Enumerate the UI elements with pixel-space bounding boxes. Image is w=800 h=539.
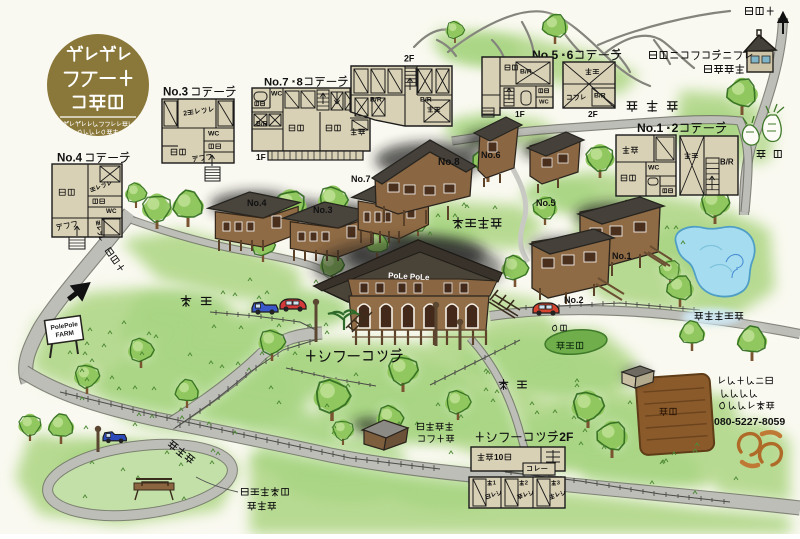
svg-text:No.3: No.3	[313, 205, 333, 215]
svg-text:No.1: No.1	[637, 121, 663, 135]
svg-text:No.8: No.8	[438, 157, 460, 168]
svg-text:No.5: No.5	[536, 198, 556, 208]
svg-text:B/R: B/R	[256, 121, 268, 128]
svg-text:B/R: B/R	[520, 69, 532, 76]
svg-text:No.2: No.2	[564, 295, 584, 305]
svg-text:No.3: No.3	[163, 86, 189, 99]
svg-text:1F: 1F	[256, 152, 266, 162]
svg-text:6: 6	[567, 48, 574, 62]
svg-text:080-5227-8059: 080-5227-8059	[714, 416, 785, 428]
svg-text:WC: WC	[271, 91, 282, 98]
svg-text:2F: 2F	[404, 53, 415, 63]
svg-text:B/R: B/R	[720, 157, 734, 166]
svg-text:No.7: No.7	[264, 76, 288, 88]
svg-text:2F: 2F	[588, 109, 598, 119]
svg-text:2: 2	[672, 121, 679, 135]
svg-text:WC: WC	[106, 208, 117, 215]
svg-text:WC: WC	[648, 165, 659, 172]
svg-text:No.6: No.6	[481, 150, 501, 160]
svg-text:2F: 2F	[559, 430, 573, 444]
svg-text:No.7: No.7	[351, 174, 371, 184]
svg-text:8: 8	[297, 76, 303, 88]
svg-text:10: 10	[494, 452, 504, 462]
svg-text:WC: WC	[539, 100, 549, 106]
svg-text:No.4: No.4	[247, 198, 267, 208]
svg-text:WC: WC	[208, 131, 219, 138]
svg-text:No.1: No.1	[612, 251, 632, 261]
svg-text:1F: 1F	[515, 109, 525, 119]
svg-text:No.4: No.4	[57, 152, 83, 165]
svg-text:B/R: B/R	[594, 93, 606, 100]
svg-text:2: 2	[525, 481, 528, 487]
